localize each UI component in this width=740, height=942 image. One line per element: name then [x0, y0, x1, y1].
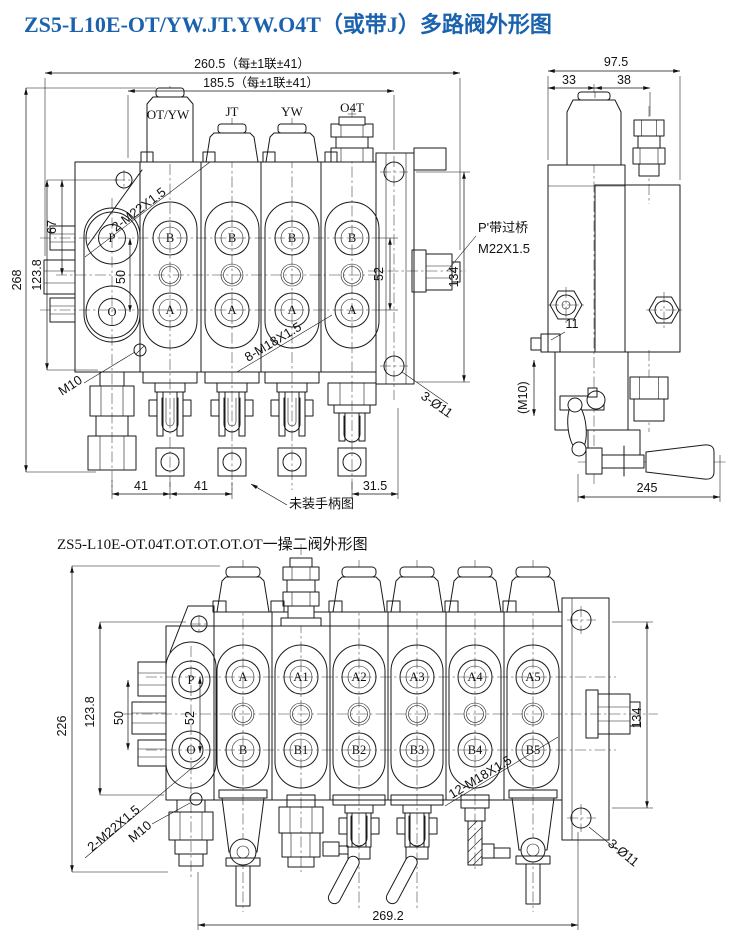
fig2-ann-mount-holes: 3-Ø11: [605, 836, 642, 870]
fig2-dim-ab-spacing: 52: [183, 711, 197, 725]
port-b-label: B: [348, 231, 356, 245]
dim-end-offset: 31.5: [363, 479, 387, 493]
port-b-label: B: [228, 231, 236, 245]
valve-outline-drawing-page: ZS5-L10E-OT/YW.JT.YW.O4T（或带J）多路阀外形图 P: [0, 0, 740, 942]
fig2-end-plate: [562, 598, 640, 840]
fig2-dim-total-width: 269.2: [372, 909, 403, 923]
ann-no-handle: 未装手柄图: [289, 496, 354, 511]
drawing-canvas: ZS5-L10E-OT/YW.JT.YW.O4T（或带J）多路阀外形图 P: [0, 0, 740, 942]
fig2-dim-plate-height: 134: [630, 708, 644, 729]
section-label-3: YW: [281, 104, 303, 119]
ann-mount-holes: 3-Ø11: [418, 388, 455, 420]
fig2-front-view: P O A B A1 B1 A2 B2 A3 B3: [55, 544, 658, 930]
fig1-end-plate: [376, 148, 460, 384]
dim-port-offset: 11: [566, 317, 579, 331]
fig2-port-a: A: [238, 670, 247, 684]
fig1-title: ZS5-L10E-OT/YW.JT.YW.O4T（或带J）多路阀外形图: [24, 12, 552, 37]
fig1-side-view: 97.5 33 38 11 (M10) 245: [516, 55, 726, 502]
fig2-port-a5: A5: [525, 670, 540, 684]
ann-bridge-1: P'带过桥: [478, 220, 528, 235]
ann-drain-thread: M10: [55, 372, 84, 398]
section-label-1: OT/YW: [147, 107, 190, 122]
port-b-label: B: [166, 231, 174, 245]
section-label-4: O4T: [340, 100, 364, 115]
port-a-label: A: [347, 303, 356, 317]
fig2-inlet-section: P O: [132, 642, 216, 805]
fig2-dim-po-spacing: 50: [112, 711, 126, 725]
port-a-label: A: [227, 303, 236, 317]
fig1-front-view: P O B A B A B A B A: [10, 56, 530, 511]
fig2-drain-hole: [190, 793, 202, 805]
fig2-bonnets: [213, 558, 559, 626]
port-o-label: O: [107, 305, 116, 319]
fig2-port-a3: A3: [409, 670, 424, 684]
fig2-port-b3: B3: [410, 743, 425, 757]
spool-handle-1: [326, 854, 361, 906]
fig2-port-b4: B4: [468, 743, 483, 757]
dim-top-height: 67: [45, 220, 59, 234]
fig2-port-a1: A1: [293, 670, 308, 684]
fig1-side-body: [531, 92, 714, 479]
fig2-port-b2: B2: [352, 743, 367, 757]
dim-spool-pitch-2: 41: [194, 479, 208, 493]
fig2-title: ZS5-L10E-OT.04T.OT.OT.OT.OT一操二阀外形图: [57, 536, 368, 553]
dim-total-height: 268: [10, 270, 24, 291]
dim-po-spacing: 50: [114, 270, 128, 284]
fig2-port-b1: B1: [294, 743, 309, 757]
fig1-inlet-section: P O: [44, 208, 146, 356]
fig2-port-b: B: [239, 743, 247, 757]
dim-side-right: 38: [617, 73, 631, 87]
ann-bridge-2: M22X1.5: [478, 241, 530, 256]
fig2-dim-mid-height: 123.8: [83, 696, 97, 727]
fig2-port-p-label: P: [188, 673, 195, 687]
fig2-port-b5: B5: [526, 743, 541, 757]
dim-total-width: 260.5（每±1联±41）: [194, 56, 310, 71]
dim-side-total-width: 97.5: [604, 55, 628, 69]
fig2-port-a2: A2: [351, 670, 366, 684]
spool-handle-2: [384, 854, 419, 906]
handle-grip: [646, 445, 714, 479]
dim-ab-spacing: 52: [372, 267, 386, 281]
fig2-centerlines: [122, 544, 658, 912]
section-label-2: JT: [226, 104, 239, 119]
ann-side-m10: (M10): [516, 381, 530, 414]
dim-plate-height: 134: [447, 267, 461, 288]
dim-spool-pitch-1: 41: [134, 479, 148, 493]
fig1-bonnets: OT/YW JT YW O4T: [141, 88, 373, 162]
fig2-bottom-assemblies: [169, 790, 557, 906]
dim-handle-length: 245: [637, 481, 658, 495]
ann-work-thread: 8-M18X1.5: [242, 319, 304, 365]
dim-inner-width: 185.5（每±1联±41）: [203, 75, 319, 90]
dim-mid-height: 123.8: [30, 259, 44, 290]
fig2-port-o-label: O: [186, 743, 195, 757]
fig1-front-annotations: 2-M22X1.5 M10 8-M18X1.5 3-Ø11 P'带过桥 M22X…: [55, 162, 530, 511]
port-a-label: A: [287, 303, 296, 317]
fig2-port-a4: A4: [467, 670, 483, 684]
port-a-label: A: [165, 303, 174, 317]
fig2-dim-total-height: 226: [55, 716, 69, 737]
port-b-label: B: [288, 231, 296, 245]
dim-side-left: 33: [562, 73, 576, 87]
